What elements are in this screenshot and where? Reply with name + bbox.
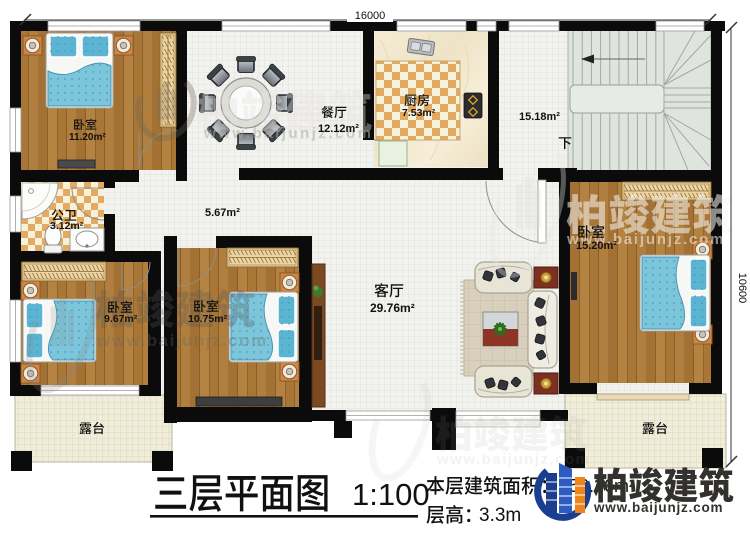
svg-text:9.67m²: 9.67m² xyxy=(104,313,138,325)
svg-text:29.76m²: 29.76m² xyxy=(370,301,415,315)
svg-text:11.20m²: 11.20m² xyxy=(69,132,106,143)
svg-text:3.3m: 3.3m xyxy=(479,505,521,526)
svg-text:1:100: 1:100 xyxy=(352,477,430,512)
svg-text:16000: 16000 xyxy=(355,10,386,22)
svg-text:15.18m²: 15.18m² xyxy=(519,111,560,123)
svg-text:www.baijunjz.com: www.baijunjz.com xyxy=(436,451,590,468)
svg-text:15.20m²: 15.20m² xyxy=(576,240,617,252)
svg-text:3.12m²: 3.12m² xyxy=(50,220,84,232)
svg-text:10600: 10600 xyxy=(736,273,748,304)
svg-text:www.baijunjz.com: www.baijunjz.com xyxy=(96,331,268,350)
svg-text:www.baijunjz.com: www.baijunjz.com xyxy=(593,500,723,515)
svg-text:7.53m²: 7.53m² xyxy=(402,107,436,119)
svg-text:12.12m²: 12.12m² xyxy=(318,123,359,135)
svg-text:5.67m²: 5.67m² xyxy=(205,207,240,219)
svg-text:10.75m²: 10.75m² xyxy=(188,313,228,325)
